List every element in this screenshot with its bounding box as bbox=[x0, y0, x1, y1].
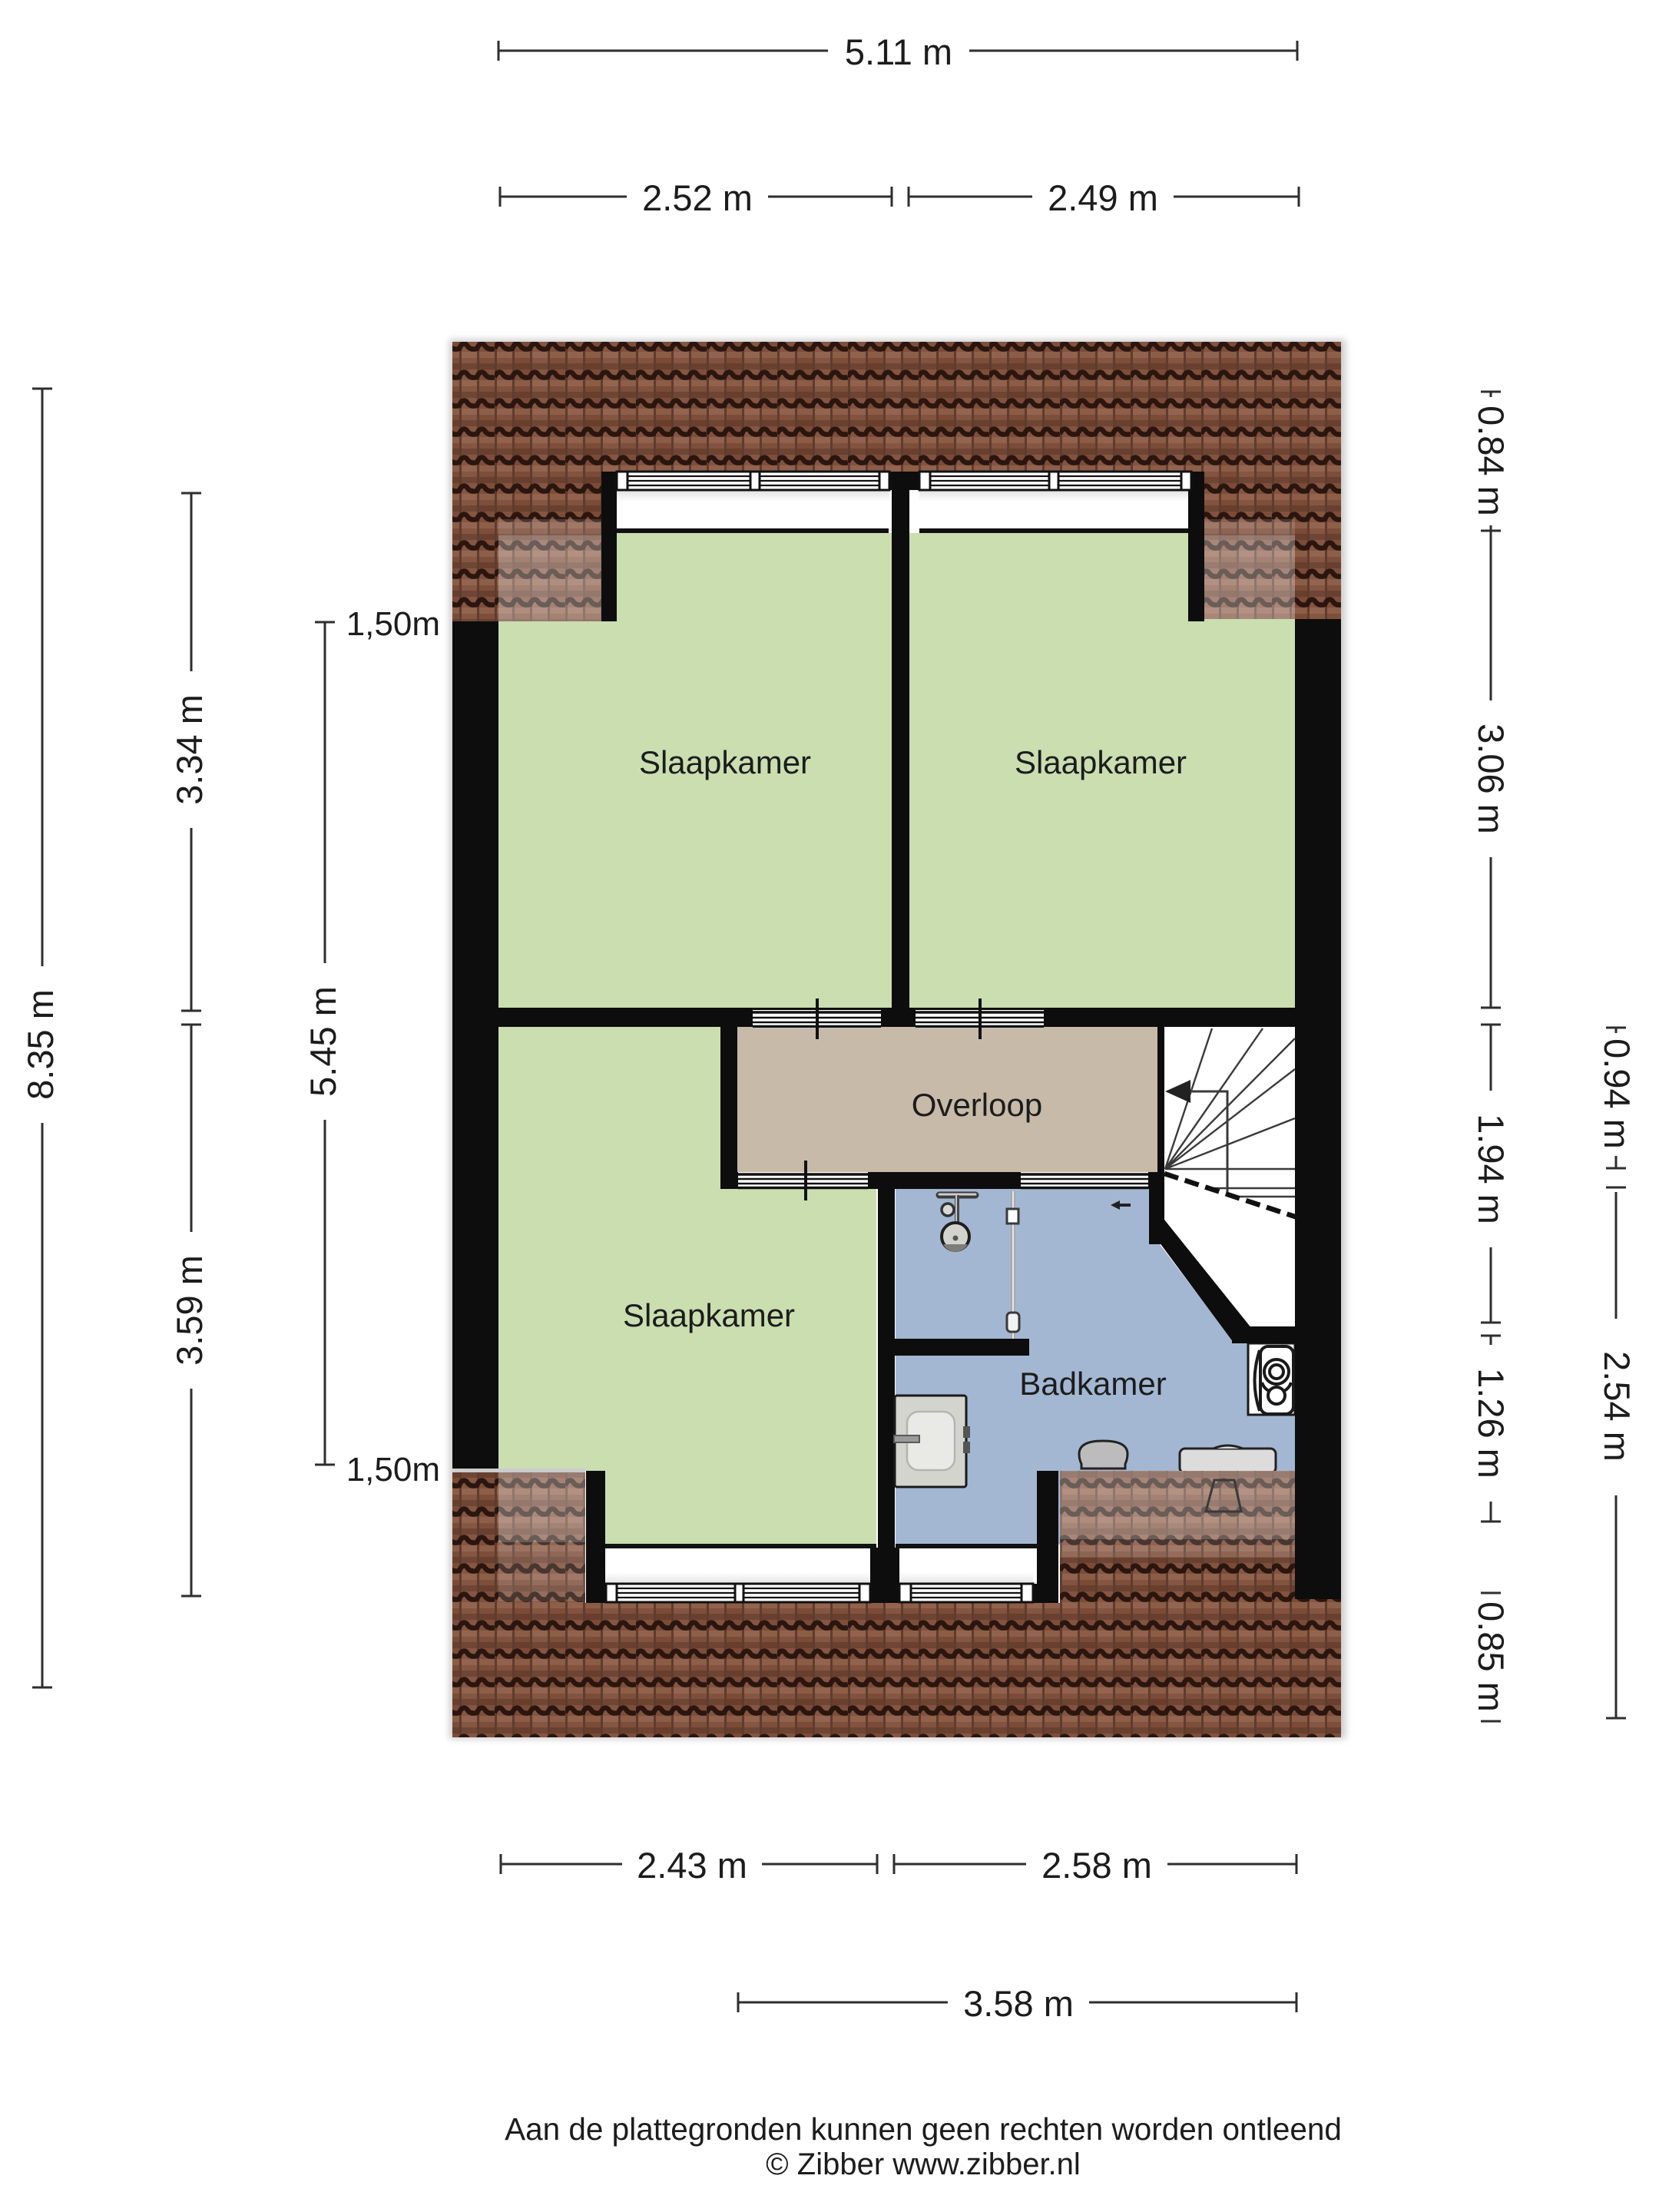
svg-text:1,50m: 1,50m bbox=[346, 605, 440, 643]
svg-text:8.35 m: 8.35 m bbox=[20, 989, 61, 1100]
svg-text:Badkamer: Badkamer bbox=[1019, 1366, 1166, 1402]
svg-text:0.84 m: 0.84 m bbox=[1471, 406, 1512, 516]
svg-text:3.59 m: 3.59 m bbox=[169, 1255, 210, 1366]
svg-text:Aan de plattegronden kunnen ge: Aan de plattegronden kunnen geen rechten… bbox=[505, 2111, 1342, 2147]
svg-text:0.94 m: 0.94 m bbox=[1597, 1038, 1637, 1149]
svg-text:1.94 m: 1.94 m bbox=[1471, 1114, 1512, 1224]
svg-text:5.45 m: 5.45 m bbox=[303, 986, 343, 1097]
svg-text:2.43 m: 2.43 m bbox=[637, 1845, 747, 1886]
svg-text:5.11 m: 5.11 m bbox=[845, 31, 952, 72]
svg-text:2.58 m: 2.58 m bbox=[1041, 1845, 1152, 1886]
svg-text:Slaapkamer: Slaapkamer bbox=[639, 744, 811, 780]
svg-text:1.26 m: 1.26 m bbox=[1471, 1368, 1512, 1479]
svg-text:Overloop: Overloop bbox=[912, 1087, 1042, 1123]
svg-text:0.85 m: 0.85 m bbox=[1471, 1601, 1512, 1712]
svg-text:2.52 m: 2.52 m bbox=[642, 177, 753, 218]
svg-text:1,50m: 1,50m bbox=[346, 1451, 440, 1488]
svg-text:3.34 m: 3.34 m bbox=[169, 694, 210, 805]
svg-text:2.49 m: 2.49 m bbox=[1048, 177, 1158, 218]
svg-text:Slaapkamer: Slaapkamer bbox=[623, 1297, 795, 1333]
svg-text:© Zibber www.zibber.nl: © Zibber www.zibber.nl bbox=[766, 2147, 1081, 2181]
svg-text:3.58 m: 3.58 m bbox=[963, 1983, 1074, 2024]
svg-text:2.54 m: 2.54 m bbox=[1597, 1351, 1637, 1462]
svg-text:3.06 m: 3.06 m bbox=[1471, 724, 1512, 834]
svg-text:Slaapkamer: Slaapkamer bbox=[1015, 744, 1187, 780]
